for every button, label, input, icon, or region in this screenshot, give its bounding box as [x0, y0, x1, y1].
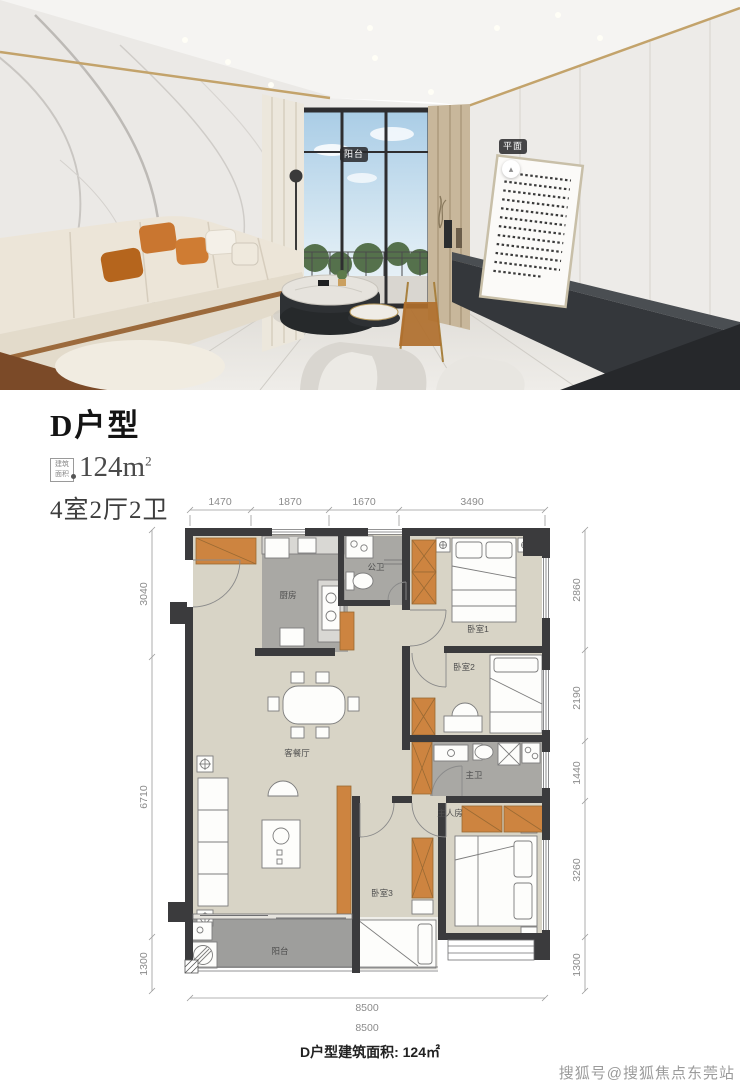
label-master-bath: 主卫: [465, 770, 483, 780]
area-badge-line2: 面积: [55, 470, 69, 479]
basin-guest: [346, 536, 373, 558]
dim-right-2: 2190: [571, 686, 583, 710]
dim-top-3: 1670: [352, 496, 376, 508]
label-balcony: 阳台: [271, 946, 288, 956]
basin-master: [434, 745, 468, 761]
hatch-corner: [185, 960, 198, 973]
dim-top-4: 3490: [460, 496, 484, 508]
label-bedroom3: 卧室3: [371, 888, 393, 898]
balcony-slider: [193, 914, 352, 919]
listing-page: 阳台 平面 ▴ D户型 建筑 面积 124m2 4室2厅2卫: [0, 0, 740, 1088]
label-bedroom2: 卧室2: [453, 662, 475, 672]
label-kitchen: 厨房: [279, 590, 296, 600]
unit-title: D户型: [50, 400, 169, 445]
floorplan: 客餐厅 厨房 公卫 卧室1 卧室2 主卫 主人房 卧室3 阳台: [0, 490, 740, 1050]
label-master-bedroom: 主人房: [437, 808, 463, 818]
orange-pillow: [138, 222, 178, 255]
badge-dot: [71, 474, 76, 479]
dim-left-3: 1300: [138, 952, 150, 976]
photo-icon[interactable]: ▴: [502, 160, 520, 178]
dim-right-3: 1440: [571, 761, 583, 785]
label-living-dining: 客餐厅: [284, 748, 310, 758]
dim-top-1: 1470: [208, 496, 232, 508]
dim-bottom-total: 8500: [355, 1022, 379, 1034]
watermark: 搜狐号@搜狐焦点东莞站: [559, 1062, 735, 1083]
balcony-sink: [190, 922, 212, 940]
dim-top-2: 1870: [278, 496, 302, 508]
area-badge-line1: 建筑: [55, 460, 69, 469]
vr-hotspot-balcony[interactable]: 阳台: [340, 147, 368, 162]
desk: [444, 716, 482, 732]
plant: [337, 270, 347, 280]
floorplan-drawing: 客餐厅 厨房 公卫 卧室1 卧室2 主卫 主人房 卧室3 阳台: [0, 490, 740, 1050]
label-guest-bath: 公卫: [367, 562, 385, 572]
area-value: 124m2: [79, 454, 152, 482]
art-frame: [480, 155, 583, 306]
dim-bottom: 8500: [355, 1002, 379, 1014]
dining-table: [283, 686, 345, 724]
label-bedroom1: 卧室1: [467, 624, 489, 634]
dim-right-5: 1300: [571, 953, 583, 977]
striped-pillow: [232, 243, 258, 265]
vr-hotspot-plan[interactable]: 平面: [499, 139, 527, 154]
toilet-master: [475, 745, 493, 759]
dim-left-1: 3040: [138, 582, 150, 606]
dim-right-4: 3260: [571, 858, 583, 882]
kitchen-sink: [265, 538, 289, 558]
dim-right-1: 2860: [571, 578, 583, 602]
tv-cabinet-plan: [337, 786, 351, 916]
living-room-illustration: [0, 0, 740, 390]
chaise-cushion: [55, 340, 225, 390]
dim-left-2: 6710: [138, 785, 150, 809]
area-badge: 建筑 面积: [50, 458, 74, 482]
orange-pillow: [175, 237, 209, 266]
living-room-photo: 阳台 平面 ▴: [0, 0, 740, 390]
footer-area-text: D户型建筑面积: 124㎡: [0, 1042, 740, 1062]
